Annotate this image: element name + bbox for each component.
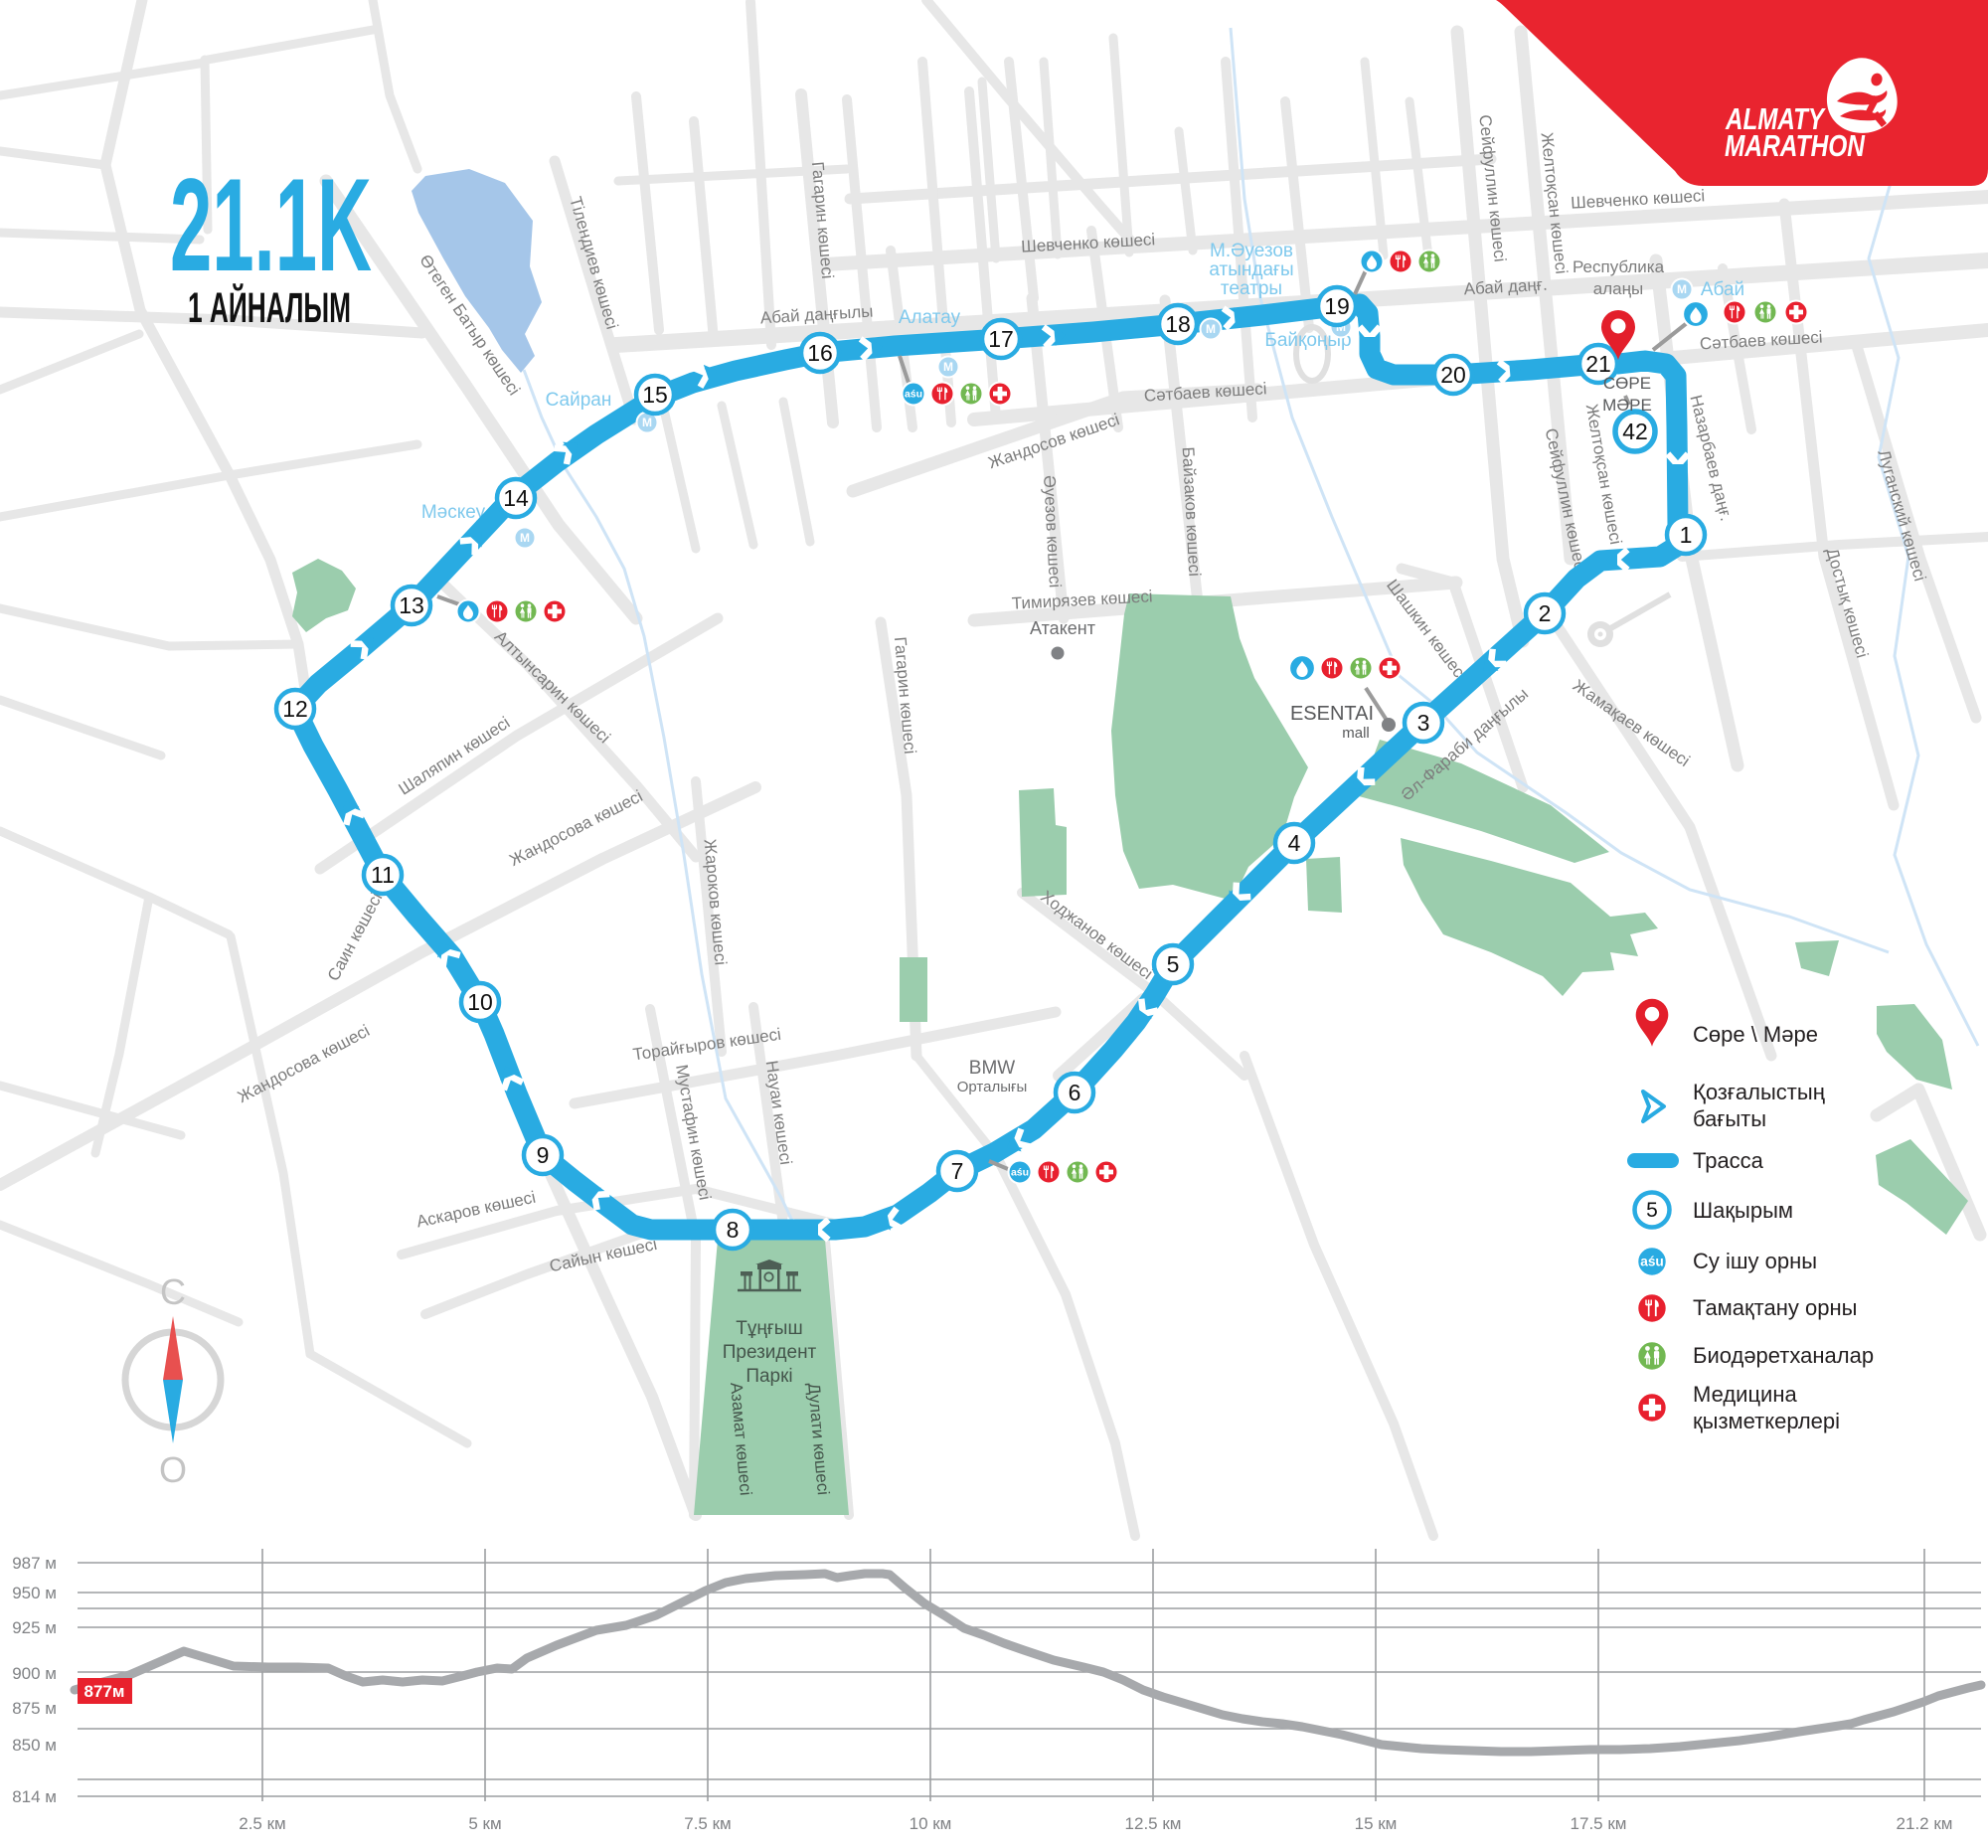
svg-text:aśu: aśu bbox=[1011, 1167, 1029, 1179]
svg-text:Медицина: Медицина bbox=[1693, 1382, 1797, 1407]
svg-text:Трасса: Трасса bbox=[1693, 1148, 1764, 1173]
svg-text:13: 13 bbox=[399, 592, 424, 618]
svg-text:С: С bbox=[160, 1271, 186, 1312]
svg-text:2: 2 bbox=[1539, 600, 1552, 626]
svg-text:11: 11 bbox=[371, 862, 395, 888]
svg-text:5: 5 bbox=[1167, 951, 1180, 977]
svg-text:MARATHON: MARATHON bbox=[1725, 128, 1865, 163]
svg-text:850 м: 850 м bbox=[12, 1736, 57, 1755]
svg-text:МӘРЕ: МӘРЕ bbox=[1602, 396, 1652, 415]
svg-text:Абай: Абай bbox=[1701, 279, 1744, 300]
svg-text:ESENTAI: ESENTAI bbox=[1290, 703, 1374, 725]
svg-text:Орталығы: Орталығы bbox=[957, 1079, 1028, 1095]
svg-text:5: 5 bbox=[1646, 1199, 1658, 1222]
svg-text:М.Әуезов: М.Әуезов bbox=[1210, 241, 1293, 261]
svg-text:О: О bbox=[159, 1449, 187, 1490]
svg-text:1 АЙНАЛЫМ: 1 АЙНАЛЫМ bbox=[188, 283, 351, 332]
svg-text:Атакент: Атакент bbox=[1030, 618, 1095, 638]
svg-text:BMW: BMW bbox=[969, 1058, 1016, 1079]
svg-text:Алатау: Алатау bbox=[899, 307, 961, 328]
svg-text:4: 4 bbox=[1288, 830, 1301, 856]
svg-text:7: 7 bbox=[951, 1158, 964, 1184]
svg-text:Биодәретханалар: Биодәретханалар bbox=[1693, 1343, 1874, 1368]
svg-text:17.5 км: 17.5 км bbox=[1571, 1814, 1627, 1833]
svg-text:aśu: aśu bbox=[905, 389, 922, 401]
svg-text:19: 19 bbox=[1324, 293, 1350, 319]
svg-text:Тұңғыш: Тұңғыш bbox=[736, 1318, 802, 1339]
svg-text:42: 42 bbox=[1622, 419, 1648, 444]
svg-text:aśu: aśu bbox=[1640, 1255, 1664, 1269]
svg-text:5 км: 5 км bbox=[468, 1814, 501, 1833]
svg-text:814 м: 814 м bbox=[12, 1787, 57, 1806]
svg-text:Шақырым: Шақырым bbox=[1693, 1198, 1793, 1223]
svg-text:Қозғалыстың: Қозғалыстың bbox=[1693, 1080, 1825, 1104]
svg-text:21.2 км: 21.2 км bbox=[1897, 1814, 1953, 1833]
svg-text:16: 16 bbox=[807, 340, 833, 366]
svg-text:М: М bbox=[1206, 322, 1216, 336]
svg-text:18: 18 bbox=[1165, 311, 1191, 337]
svg-text:театры: театры bbox=[1221, 278, 1282, 299]
svg-text:875 м: 875 м bbox=[12, 1699, 57, 1718]
svg-text:1: 1 bbox=[1680, 522, 1693, 548]
svg-text:Тамақтану орны: Тамақтану орны bbox=[1693, 1295, 1857, 1320]
svg-text:21.1K: 21.1K bbox=[170, 152, 372, 299]
svg-text:10: 10 bbox=[467, 989, 493, 1015]
svg-text:3: 3 bbox=[1417, 710, 1430, 736]
svg-text:М: М bbox=[1677, 282, 1687, 296]
svg-text:10 км: 10 км bbox=[910, 1814, 952, 1833]
svg-text:Президент: Президент bbox=[723, 1342, 817, 1363]
svg-text:8: 8 bbox=[727, 1217, 740, 1243]
svg-text:925 м: 925 м bbox=[12, 1618, 57, 1637]
svg-text:Паркі: Паркі bbox=[745, 1366, 792, 1387]
svg-text:12: 12 bbox=[282, 696, 308, 722]
svg-text:М: М bbox=[520, 531, 530, 545]
svg-text:бағыты: бағыты bbox=[1693, 1106, 1766, 1131]
svg-text:алаңы: алаңы bbox=[1593, 279, 1643, 298]
svg-text:987 м: 987 м bbox=[12, 1554, 57, 1573]
svg-text:6: 6 bbox=[1069, 1080, 1081, 1105]
svg-text:7.5 км: 7.5 км bbox=[684, 1814, 731, 1833]
svg-text:14: 14 bbox=[503, 485, 529, 511]
svg-text:950 м: 950 м bbox=[12, 1584, 57, 1602]
svg-text:mall: mall bbox=[1342, 725, 1370, 742]
svg-text:Республика: Республика bbox=[1573, 257, 1665, 276]
svg-text:атындағы: атындағы bbox=[1209, 259, 1293, 280]
svg-text:М: М bbox=[943, 360, 953, 374]
svg-text:17: 17 bbox=[988, 326, 1014, 352]
svg-text:қызметкерлері: қызметкерлері bbox=[1693, 1409, 1840, 1433]
svg-text:Сайран: Сайран bbox=[546, 390, 612, 411]
svg-text:9: 9 bbox=[537, 1142, 550, 1168]
svg-text:Су ішу орны: Су ішу орны bbox=[1693, 1249, 1817, 1273]
svg-text:20: 20 bbox=[1440, 362, 1466, 388]
svg-text:15 км: 15 км bbox=[1355, 1814, 1398, 1833]
svg-text:2.5 км: 2.5 км bbox=[239, 1814, 285, 1833]
svg-text:15: 15 bbox=[642, 382, 668, 408]
svg-text:877м: 877м bbox=[84, 1682, 125, 1701]
svg-text:Сөре \ Мәре: Сөре \ Мәре bbox=[1693, 1022, 1818, 1047]
svg-text:12.5 км: 12.5 км bbox=[1125, 1814, 1182, 1833]
svg-text:900 м: 900 м bbox=[12, 1664, 57, 1683]
svg-text:М: М bbox=[642, 416, 652, 429]
svg-text:СӨРЕ: СӨРЕ bbox=[1603, 374, 1651, 393]
svg-text:Мәскеу: Мәскеу bbox=[421, 502, 486, 523]
